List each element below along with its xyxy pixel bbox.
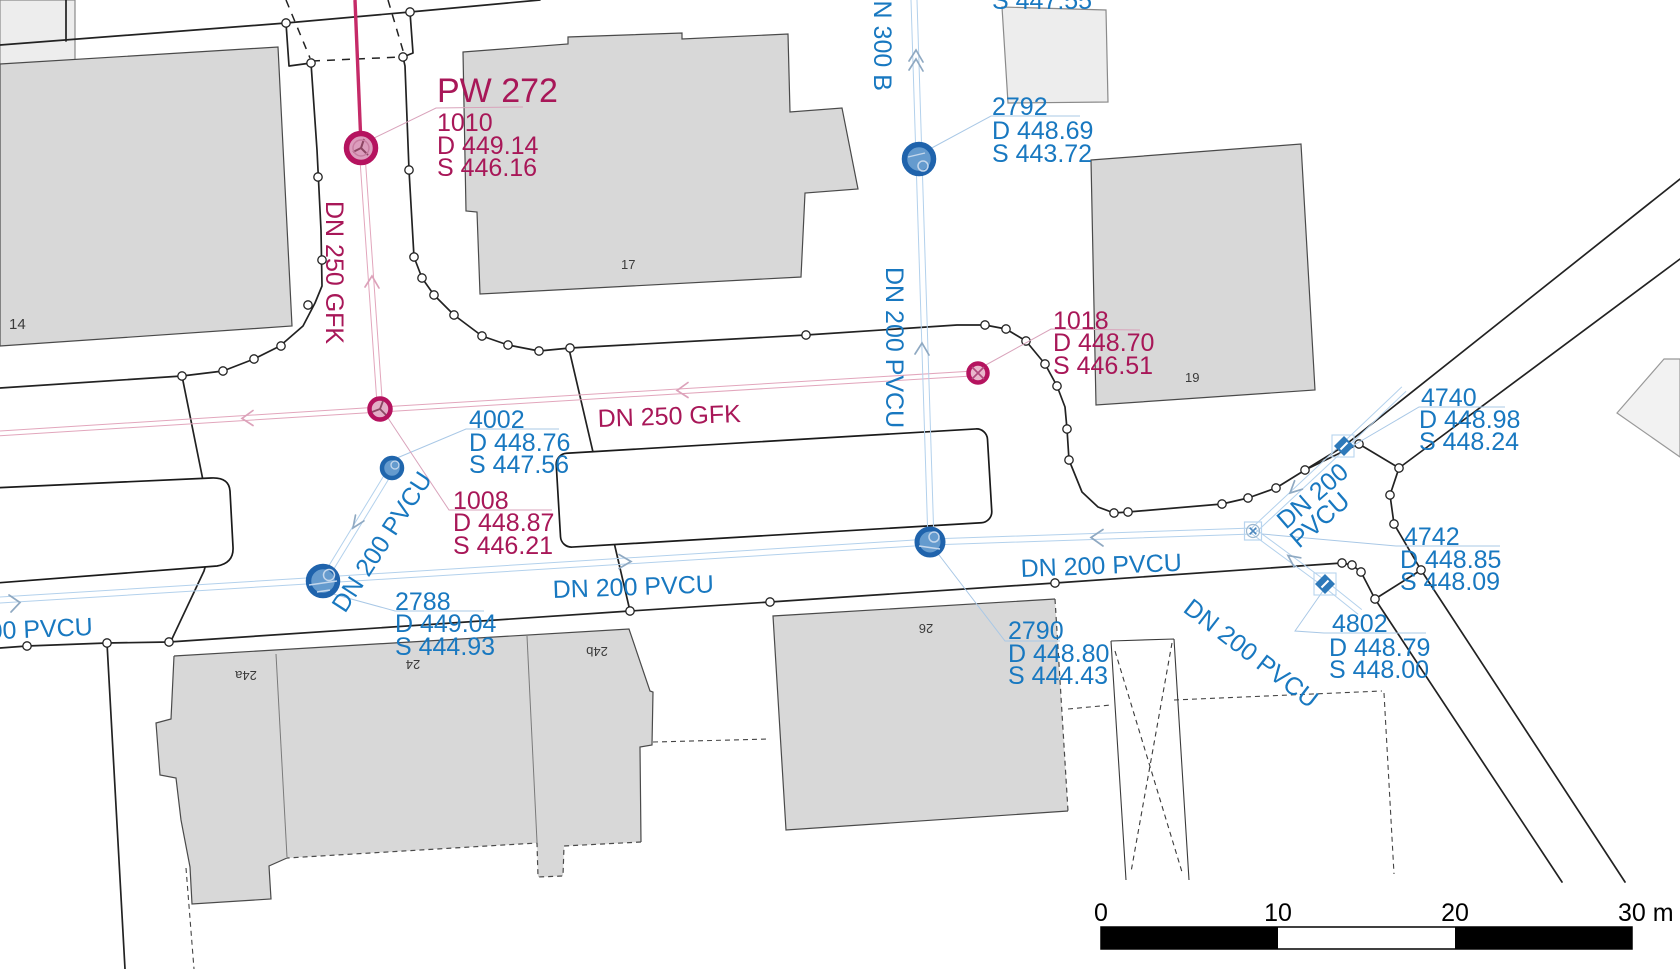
svg-text:10: 10	[1264, 899, 1292, 927]
svg-text:PW 272: PW 272	[437, 72, 558, 110]
svg-text:0: 0	[1094, 899, 1108, 927]
svg-text:S 447.56: S 447.56	[469, 451, 569, 479]
svg-text:S 444.43: S 444.43	[1008, 662, 1108, 690]
svg-text:S 447.55: S 447.55	[992, 0, 1092, 15]
svg-text:20: 20	[1441, 899, 1469, 927]
svg-text:DN 200 PVCU: DN 200 PVCU	[880, 267, 908, 428]
svg-text:26: 26	[919, 621, 933, 636]
svg-text:S 446.21: S 446.21	[453, 532, 553, 560]
svg-text:14: 14	[9, 316, 26, 333]
svg-text:S 448.09: S 448.09	[1400, 568, 1500, 596]
svg-text:S 443.72: S 443.72	[992, 140, 1092, 168]
svg-text:S 446.51: S 446.51	[1053, 352, 1153, 380]
svg-text:19: 19	[1185, 370, 1199, 385]
svg-text:24: 24	[406, 657, 420, 672]
svg-text:S 446.16: S 446.16	[437, 154, 537, 182]
svg-text:DN 250 GFK: DN 250 GFK	[320, 201, 348, 344]
svg-text:30 m: 30 m	[1618, 899, 1674, 927]
svg-text:17: 17	[621, 257, 635, 272]
svg-text:S 444.93: S 444.93	[395, 633, 495, 661]
svg-text:24a: 24a	[234, 668, 256, 683]
svg-text:DN 250 GFK: DN 250 GFK	[597, 400, 741, 433]
svg-text:DN 300 B: DN 300 B	[868, 0, 896, 91]
svg-text:24b: 24b	[586, 644, 608, 659]
svg-text:S 448.00: S 448.00	[1329, 656, 1429, 684]
svg-text:S 448.24: S 448.24	[1419, 428, 1519, 456]
svg-text:DN 200 PVCU: DN 200 PVCU	[552, 570, 714, 604]
